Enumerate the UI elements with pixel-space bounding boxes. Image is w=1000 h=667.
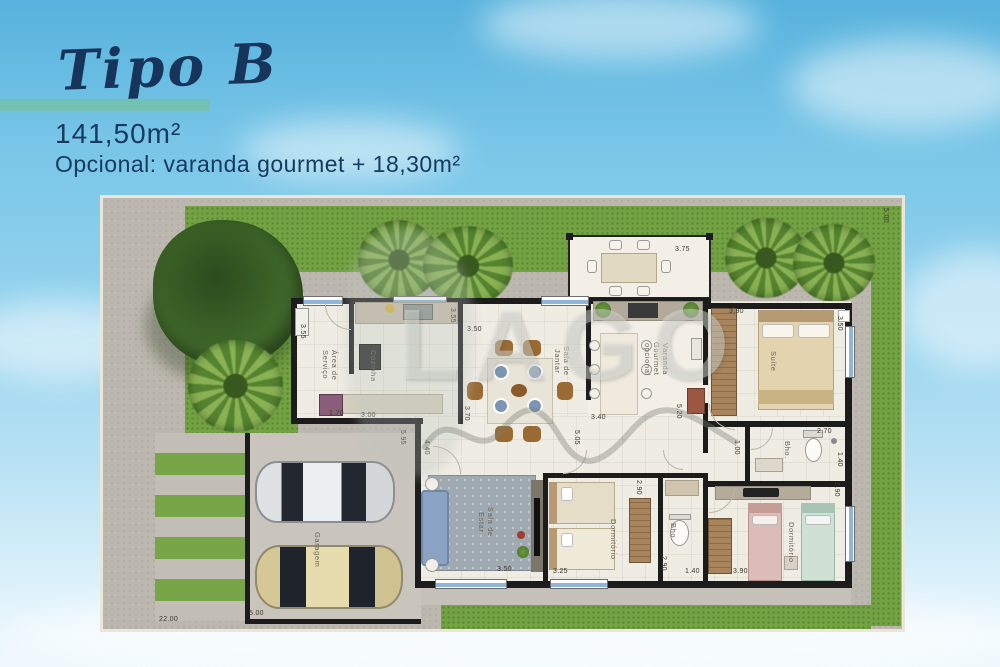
room-label-dorm2: Dormitório (787, 506, 796, 578)
room-label-service: Área de Serviço (321, 338, 339, 392)
dim-deck: 3.75 (675, 246, 690, 253)
room-label-dorm1: Dormitório (609, 503, 618, 575)
room-label-living: Sala de Estar (477, 496, 495, 548)
front-walkway (415, 587, 851, 605)
pillow (561, 487, 573, 501)
dim-bath-h: 2.90 (660, 556, 667, 571)
floor-plan-page: Tipo B 141,50m² Opcional: varanda gourme… (0, 0, 1000, 667)
dim-garage-w: 5.00 (249, 610, 264, 617)
headboard (549, 482, 557, 524)
car-beige (255, 545, 403, 609)
bed (549, 528, 615, 570)
driveway (155, 433, 247, 621)
palm-tree (793, 224, 875, 302)
headboard (758, 310, 834, 322)
window (435, 579, 507, 589)
dim-service-h: 3.55 (299, 324, 306, 339)
bath-sink (755, 458, 783, 472)
bed (549, 482, 615, 524)
lawn-front (441, 605, 871, 629)
dim-sbath-w: 2.70 (817, 428, 832, 435)
dim-mid-h: 2.90 (833, 482, 840, 497)
headboard (549, 528, 557, 570)
window (550, 579, 608, 589)
cloud (900, 250, 1000, 370)
dim-lot-w: 22.00 (159, 616, 178, 623)
headboard (801, 503, 835, 513)
dim-suite-h: 3.50 (836, 316, 843, 331)
pillow (798, 324, 830, 338)
dim-dorm2-w: 3.90 (733, 568, 748, 575)
total-area-text: 141,50m² (55, 118, 181, 150)
deck-chair (587, 260, 597, 273)
wall (543, 473, 548, 582)
deck-table (601, 253, 657, 283)
sofa (421, 490, 449, 566)
dim-lot-side: 5.00 (882, 208, 889, 223)
car-white (255, 461, 395, 523)
room-label-bath: Bho. (669, 520, 678, 544)
room-label-suite-bath: Bho. (783, 438, 792, 462)
cloud (790, 40, 1000, 130)
dim-sbath-h: 1.40 (836, 452, 843, 467)
window (845, 506, 855, 562)
tv (534, 498, 540, 556)
watermark-text: LAGO (398, 288, 743, 403)
optional-area-text: Opcional: varanda gourmet + 18,30m² (55, 151, 461, 178)
dim-service-w: 1.70 (329, 410, 344, 417)
pillow (805, 515, 831, 525)
bath-sink (665, 480, 699, 496)
wall (548, 473, 708, 478)
room-label-suite: Suíte (769, 344, 778, 378)
dim-living-w: 3.50 (497, 566, 512, 573)
wall (245, 619, 421, 624)
palm-tree (188, 340, 283, 432)
shower-head (831, 438, 837, 444)
lawn-right (871, 206, 901, 626)
title-underline-bar (0, 99, 210, 111)
deck-pillar (706, 233, 713, 240)
plant (517, 546, 529, 558)
side-table (425, 558, 439, 572)
dim-bath-w: 1.40 (685, 568, 700, 575)
headboard (748, 503, 782, 513)
laptop (743, 488, 779, 497)
deck-chair (609, 240, 622, 250)
pillow (762, 324, 794, 338)
pillow (561, 533, 573, 547)
decor (517, 531, 525, 539)
dim-dorm1-h: 2.90 (635, 480, 642, 495)
pillow (752, 515, 778, 525)
toilet (805, 438, 822, 462)
watermark-signature (420, 392, 740, 472)
wall (745, 424, 750, 481)
dim-dorm1-w: 3.25 (553, 568, 568, 575)
bed-throw (758, 390, 834, 404)
room-label-garage: Garagem (313, 524, 322, 576)
window (845, 326, 855, 378)
wall (245, 433, 250, 623)
side-table (425, 477, 439, 491)
deck-pillar (566, 233, 573, 240)
cloud (480, 0, 760, 60)
deck-chair (661, 260, 671, 273)
deck-chair (637, 240, 650, 250)
page-title: Tipo B (57, 30, 280, 103)
wardrobe (708, 518, 732, 574)
wardrobe (629, 498, 651, 563)
